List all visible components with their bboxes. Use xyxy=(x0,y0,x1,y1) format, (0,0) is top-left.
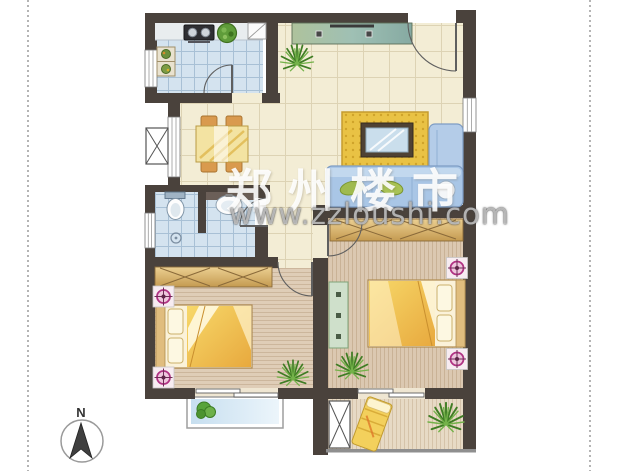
floorplan-drawing: N xyxy=(0,0,620,471)
wall-kitchen-living xyxy=(266,23,278,93)
wardrobe-icon xyxy=(330,219,463,241)
double-bed-icon xyxy=(156,305,252,368)
bedside-stool-icon xyxy=(153,286,174,307)
wall-bathroom-right-top xyxy=(255,185,268,198)
mirror-table-icon xyxy=(361,123,413,157)
bedroom2-door-threshold xyxy=(313,225,328,258)
elevator-shaft-icon xyxy=(146,128,168,164)
window-icon xyxy=(168,117,180,177)
kitchen-door-threshold xyxy=(232,93,262,103)
kitchen-cabinet-icon xyxy=(157,47,175,76)
window-icon xyxy=(145,50,157,87)
stove-icon xyxy=(184,25,214,43)
compass-north-label: N xyxy=(76,405,85,420)
hallway-floor xyxy=(266,185,313,268)
sideboard-icon xyxy=(292,23,412,44)
wall-bottom-left xyxy=(145,388,195,399)
compass-icon: N xyxy=(61,405,103,462)
wall-kitchen-bottom xyxy=(145,93,232,103)
bedside-stool-icon xyxy=(447,349,468,370)
shaft-icon xyxy=(329,401,350,448)
wall-bedroom1-top xyxy=(145,257,278,268)
wall-right xyxy=(463,10,476,452)
vegetable-basket-icon xyxy=(218,24,237,43)
bedside-stool-icon xyxy=(153,367,174,388)
dresser-icon xyxy=(329,282,348,348)
window-icon xyxy=(463,98,476,132)
floorplan-image: N 郑州楼市 www.zzloushi.com xyxy=(0,0,620,471)
wall-bottom-right xyxy=(425,388,476,399)
window-icon xyxy=(145,213,155,248)
wall-bathroom-top xyxy=(155,185,270,192)
wall-bedroom2-left-top xyxy=(313,205,328,225)
wall-balcony2-edge xyxy=(326,449,476,453)
wall-kitchen-bottom-pillar xyxy=(262,93,280,103)
wall-bathroom-divider xyxy=(198,192,206,233)
wall-bottom-center xyxy=(278,388,358,399)
corner-shelf-icon xyxy=(248,23,266,39)
dining-table-icon xyxy=(196,126,248,162)
wardrobe-icon xyxy=(155,267,272,287)
wall-bedroom2-left xyxy=(313,258,328,455)
balcony1-group xyxy=(187,397,283,428)
wall-top xyxy=(145,13,408,23)
bedside-stool-icon xyxy=(447,258,468,279)
double-bed-icon xyxy=(368,280,465,347)
wall-bathroom-right-bottom xyxy=(255,226,268,257)
